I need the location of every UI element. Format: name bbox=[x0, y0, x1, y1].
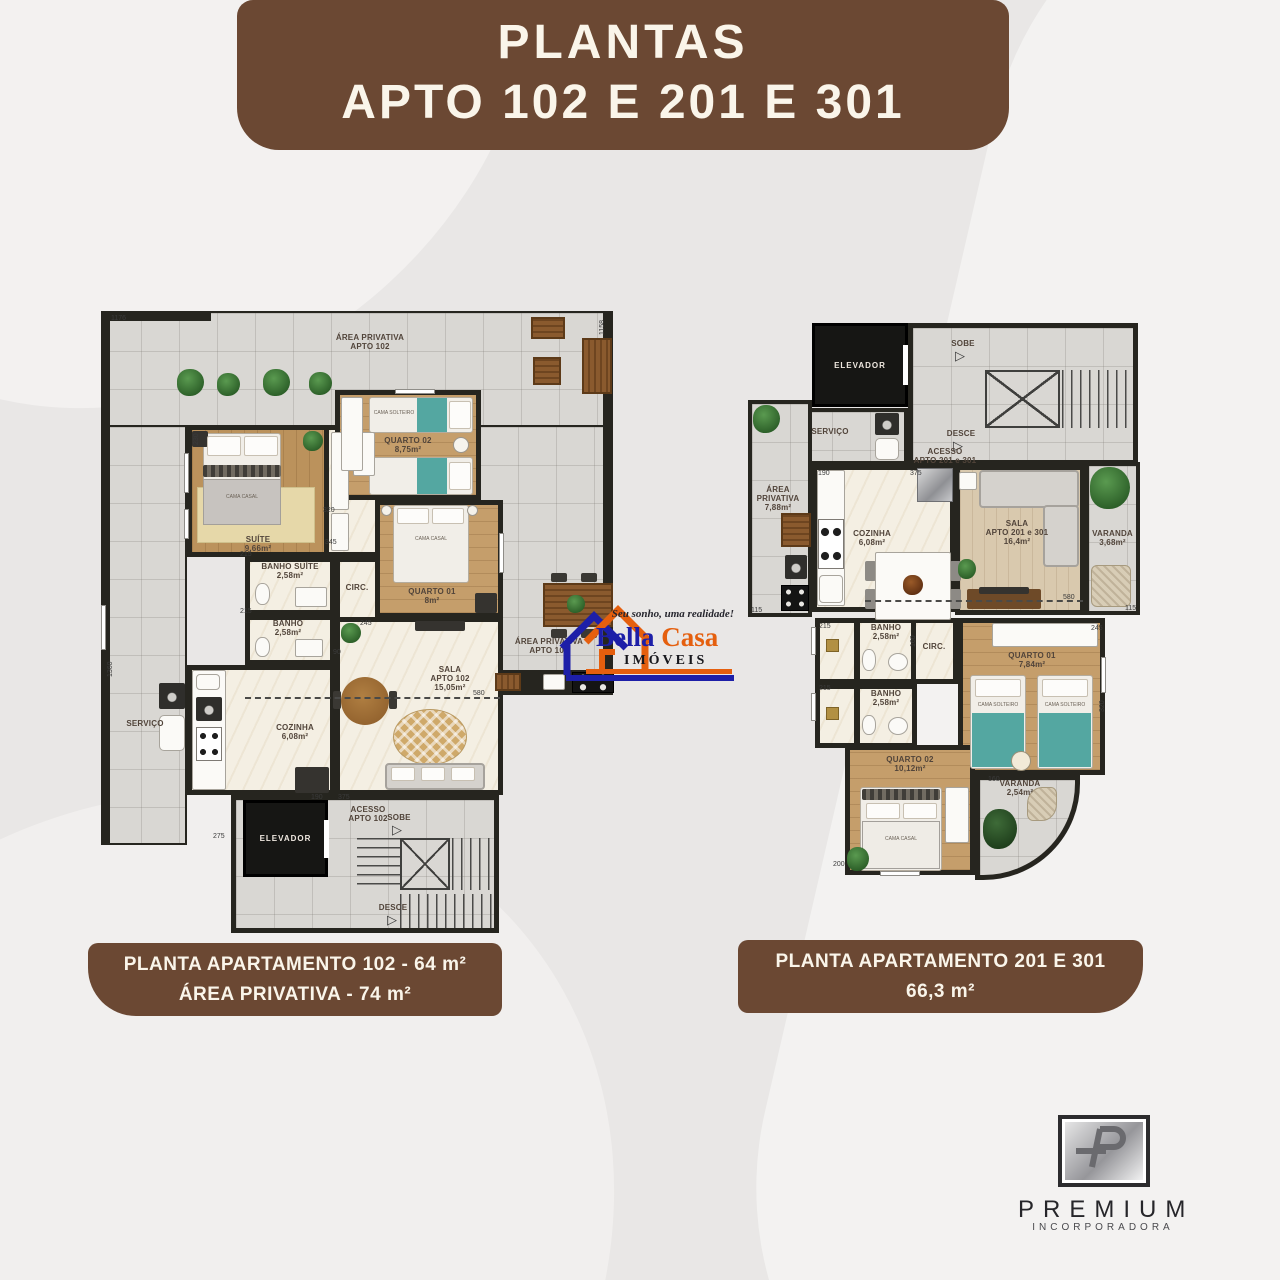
label-text: BANHO bbox=[253, 619, 323, 628]
label-text: 16,4m² bbox=[967, 537, 1067, 546]
bed-label: CAMA SOLTEIRO bbox=[371, 411, 417, 416]
deck-chair bbox=[531, 317, 565, 339]
label-text: APTO 201 e 301 bbox=[900, 456, 990, 465]
bed-cover-teal bbox=[417, 458, 447, 494]
stairs-down-arrow-icon bbox=[387, 913, 397, 926]
floorplan-apto-102: ÁREA PRIVATIVA APTO 102 ÁREA PRIVATIVA A… bbox=[95, 305, 620, 937]
banho2-label: BANHO 2,58m² bbox=[857, 689, 915, 707]
window bbox=[101, 605, 106, 650]
elevator-door bbox=[903, 345, 908, 385]
nightstand bbox=[467, 505, 478, 516]
label-text: ÁREA PRIVATIVA bbox=[745, 485, 811, 503]
stairs-up-arrow-icon bbox=[955, 349, 965, 362]
caption-line1: PLANTA APARTAMENTO 201 E 301 bbox=[738, 947, 1143, 977]
logo-underline-blue bbox=[566, 675, 734, 681]
elevator-label: ELEVADOR bbox=[834, 361, 886, 370]
label-text: 2,54m² bbox=[985, 788, 1055, 797]
label-text: 7,84m² bbox=[992, 660, 1072, 669]
chair bbox=[333, 691, 341, 709]
suite-label: SUÍTE 9,66m² bbox=[223, 535, 293, 553]
stove bbox=[196, 727, 222, 761]
laundry-washer bbox=[159, 683, 185, 709]
pillow bbox=[432, 508, 464, 524]
sofa-cushion bbox=[391, 767, 415, 781]
dimension-label: 375 bbox=[338, 794, 350, 801]
bed-label: CAMA CASAL bbox=[866, 837, 936, 842]
chair bbox=[950, 589, 961, 609]
kitchen-sink bbox=[819, 575, 843, 603]
label-text: 7,88m² bbox=[745, 503, 811, 512]
dimension-label: 190 bbox=[818, 470, 830, 477]
dimension-label: 345 bbox=[325, 539, 337, 546]
dimension-label: 580 bbox=[473, 690, 485, 697]
quarto02-label: QUARTO 02 10,12m² bbox=[860, 755, 960, 773]
bedside-table bbox=[453, 437, 469, 453]
label-text: QUARTO 01 bbox=[397, 587, 467, 596]
label-text: 3,68m² bbox=[1086, 538, 1139, 547]
banho-suite-label: BANHO SUÍTE 2,58m² bbox=[248, 562, 332, 580]
title-banner: PLANTAS APTO 102 E 201 E 301 bbox=[237, 0, 1009, 150]
sink-counter bbox=[295, 587, 327, 607]
closet-mirror bbox=[826, 639, 839, 652]
logo-underline-orange bbox=[586, 669, 732, 674]
stairs-cross-square bbox=[400, 838, 450, 890]
pillow bbox=[975, 679, 1021, 697]
measure-dashed-line bbox=[245, 697, 500, 699]
caption-apto-102: PLANTA APARTAMENTO 102 - 64 m² ÁREA PRIV… bbox=[88, 943, 502, 1016]
stair-treads bbox=[357, 838, 400, 890]
area-privativa-label: ÁREA PRIVATIVA 7,88m² bbox=[745, 485, 811, 512]
tv bbox=[979, 587, 1029, 594]
dimension-label: 215 bbox=[819, 685, 831, 692]
pillow bbox=[244, 436, 278, 456]
label-text: APTO 102 bbox=[325, 342, 415, 351]
toilet bbox=[862, 649, 876, 671]
bella-name: Bella Casa bbox=[596, 622, 718, 653]
dimension-label: 230 bbox=[193, 433, 200, 445]
tv bbox=[415, 621, 465, 631]
label-text: QUARTO 01 bbox=[992, 651, 1072, 660]
label-text: 8,75m² bbox=[373, 445, 443, 454]
label-text: QUARTO 02 bbox=[860, 755, 960, 764]
premium-monogram-icon bbox=[1058, 1115, 1150, 1187]
label-text: 2,58m² bbox=[857, 632, 915, 641]
caption-line2: 66,3 m² bbox=[738, 977, 1143, 1007]
window bbox=[499, 533, 504, 573]
stair-treads bbox=[1062, 370, 1134, 428]
caption-line1: PLANTA APARTAMENTO 102 - 64 m² bbox=[88, 950, 502, 980]
dimension-label: 190 bbox=[311, 794, 323, 801]
floorplan-apto-201-301: ELEVADOR SOBE DESCE ACESSO APTO 201 e 30… bbox=[745, 317, 1165, 883]
appliance bbox=[785, 555, 807, 579]
pillow bbox=[207, 436, 241, 456]
banho-label: BANHO 2,58m² bbox=[253, 619, 323, 637]
label-text: QUARTO 02 bbox=[373, 436, 443, 445]
bed-label: CAMA CASAL bbox=[397, 537, 465, 542]
room-circ bbox=[911, 618, 958, 684]
label-text: SUÍTE bbox=[223, 535, 293, 544]
caption-line2: ÁREA PRIVATIVA - 74 m² bbox=[88, 980, 502, 1010]
laundry-tank bbox=[875, 438, 899, 460]
nightstand bbox=[381, 505, 392, 516]
pillow bbox=[449, 401, 471, 429]
label-text: ACESSO bbox=[900, 447, 990, 456]
label-text: 6,08m² bbox=[257, 732, 333, 741]
dimension-label: 580 bbox=[1063, 594, 1075, 601]
quarto01-label: QUARTO 01 8m² bbox=[397, 587, 467, 605]
label-text: BANHO SUÍTE bbox=[248, 562, 332, 571]
label-text: COZINHA bbox=[840, 529, 904, 538]
label-text: APTO 201 e 301 bbox=[967, 528, 1067, 537]
label-text: VARANDA bbox=[1086, 529, 1139, 538]
toilet bbox=[255, 583, 270, 605]
stairs-cross-square bbox=[985, 370, 1060, 428]
wall bbox=[101, 311, 110, 845]
banho1-label: BANHO 2,58m² bbox=[857, 623, 915, 641]
elevator-label: ELEVADOR bbox=[260, 834, 312, 843]
pillow bbox=[397, 508, 429, 524]
sobe-label: SOBE bbox=[381, 813, 417, 822]
elevator-door bbox=[324, 820, 329, 858]
pillow bbox=[449, 462, 471, 490]
label-text: APTO 102 bbox=[417, 674, 483, 683]
dimension-label: 1360 bbox=[107, 661, 114, 677]
label-text: DESCE bbox=[373, 903, 413, 912]
washer bbox=[875, 413, 899, 435]
fridge bbox=[295, 767, 329, 793]
bed-cover bbox=[862, 821, 940, 869]
round-dining-table bbox=[341, 677, 389, 725]
cozinha-label: COZINHA 6,08m² bbox=[257, 723, 333, 741]
wardrobe bbox=[992, 623, 1098, 647]
caption-apto-201-301: PLANTA APARTAMENTO 201 E 301 66,3 m² bbox=[738, 940, 1143, 1013]
bella-name-orange: Casa bbox=[661, 622, 718, 652]
cozinha-label: COZINHA 6,08m² bbox=[840, 529, 904, 547]
dimension-label: 90 bbox=[333, 649, 341, 656]
wardrobe bbox=[341, 397, 363, 471]
pillow bbox=[1042, 679, 1088, 697]
round-rug bbox=[393, 709, 467, 765]
acesso-label: ACESSO APTO 201 e 301 bbox=[900, 447, 990, 465]
label-text: BANHO bbox=[857, 623, 915, 632]
bed-cover-teal bbox=[417, 398, 447, 432]
outdoor-stove bbox=[781, 585, 809, 611]
label-text: 2,58m² bbox=[253, 628, 323, 637]
dimension-label: 200 bbox=[833, 861, 845, 868]
sala-label: SALA APTO 102 15,05m² bbox=[417, 665, 483, 692]
label-text: SALA bbox=[417, 665, 483, 674]
sobe-label: SOBE bbox=[945, 339, 981, 348]
lounge-chair bbox=[1091, 565, 1131, 607]
dimension-label: 245 bbox=[1091, 625, 1103, 632]
kitchen-sink bbox=[196, 674, 220, 690]
bed-label: CAMA SOLTEIRO bbox=[974, 703, 1022, 708]
dresser bbox=[475, 593, 497, 613]
sala-label: SALA APTO 201 e 301 16,4m² bbox=[967, 519, 1067, 546]
desce-label: DESCE bbox=[373, 903, 413, 912]
circ-label: CIRC. bbox=[913, 642, 955, 651]
label-text: COZINHA bbox=[257, 723, 333, 732]
sink bbox=[888, 653, 908, 671]
area-privativa-top-label: ÁREA PRIVATIVA APTO 102 bbox=[325, 333, 415, 351]
pillow bbox=[903, 803, 937, 819]
sink bbox=[888, 717, 908, 735]
closet-mirror bbox=[826, 707, 839, 720]
dimension-label: 215 bbox=[240, 608, 252, 615]
stair-treads bbox=[400, 894, 496, 928]
desce-label: DESCE bbox=[941, 429, 981, 438]
premium-logo: PREMIUM INCORPORADORA bbox=[1018, 1112, 1188, 1232]
label-text: CIRC. bbox=[913, 642, 955, 651]
servico-label: SERVIÇO bbox=[800, 427, 860, 436]
bedside-table bbox=[1011, 751, 1031, 771]
dimension-label: 160 bbox=[988, 776, 1000, 783]
bed-label: CAMA SOLTEIRO bbox=[1041, 703, 1089, 708]
elevator: ELEVADOR bbox=[812, 323, 908, 407]
stair-treads bbox=[452, 838, 496, 890]
pillow bbox=[866, 803, 900, 819]
circ-label: CIRC. bbox=[337, 583, 377, 592]
dimension-label: 115 bbox=[751, 607, 762, 614]
label-text: ÁREA PRIVATIVA bbox=[325, 333, 415, 342]
chair bbox=[389, 691, 397, 709]
sofa-cushion bbox=[451, 767, 475, 781]
label-text: 9,66m² bbox=[223, 544, 293, 553]
window bbox=[811, 627, 816, 655]
deck-panel bbox=[582, 338, 612, 394]
window bbox=[184, 453, 189, 493]
bed-cover-teal bbox=[1039, 713, 1091, 767]
label-text: SERVIÇO bbox=[800, 427, 860, 436]
bella-casa-logo: Seu sonho, uma realidade! Bella Casa IMÓ… bbox=[552, 596, 734, 698]
quarto01-label: QUARTO 01 7,84m² bbox=[992, 651, 1072, 669]
side-table bbox=[959, 472, 977, 490]
label-text: 10,12m² bbox=[860, 764, 960, 773]
dimension-label: 1176 bbox=[111, 315, 126, 322]
varanda-sala-label: VARANDA 3,68m² bbox=[1086, 529, 1139, 547]
dimension-label: 375 bbox=[910, 470, 922, 477]
label-text: DESCE bbox=[941, 429, 981, 438]
dimension-label: 115 bbox=[1125, 605, 1136, 612]
chair bbox=[581, 573, 597, 582]
deck-chair bbox=[533, 357, 561, 385]
servico-label: SERVIÇO bbox=[115, 719, 175, 728]
label-text: SALA bbox=[967, 519, 1067, 528]
bed-cover bbox=[203, 479, 281, 525]
window bbox=[395, 389, 435, 394]
quarto02-label: QUARTO 02 8,75m² bbox=[373, 436, 443, 454]
window bbox=[880, 871, 920, 876]
bed-label: CAMA CASAL bbox=[207, 495, 277, 500]
sofa-cushion bbox=[421, 767, 445, 781]
stairs-up-arrow-icon bbox=[392, 823, 402, 836]
label-text: BANHO bbox=[857, 689, 915, 698]
sofa-l-shape bbox=[979, 470, 1079, 508]
desk bbox=[945, 787, 969, 843]
bed-headboard bbox=[862, 789, 940, 800]
poster: PLANTAS APTO 102 E 201 E 301 ÁREA PRIVAT… bbox=[0, 0, 1280, 1280]
title-line2: APTO 102 E 201 E 301 bbox=[237, 72, 1009, 134]
servico-strip bbox=[101, 425, 187, 845]
label-text: SERVIÇO bbox=[115, 719, 175, 728]
label-text: CIRC. bbox=[337, 583, 377, 592]
dimension-label: 320 bbox=[323, 507, 335, 514]
elevator: ELEVADOR bbox=[243, 800, 328, 877]
toilet bbox=[255, 637, 270, 657]
label-text: 6,08m² bbox=[840, 538, 904, 547]
toilet bbox=[862, 715, 876, 735]
chair bbox=[551, 573, 567, 582]
dimension-label: 215 bbox=[240, 551, 252, 558]
dimension-label: 320 bbox=[1099, 700, 1106, 712]
sink-counter bbox=[295, 639, 323, 657]
premium-subtitle: INCORPORADORA bbox=[1018, 1222, 1188, 1233]
bed-slat-band bbox=[203, 465, 281, 477]
bella-tagline: Seu sonho, uma realidade! bbox=[612, 608, 734, 620]
bella-subtitle: IMÓVEIS bbox=[624, 653, 707, 669]
washer bbox=[196, 697, 222, 721]
label-text: SOBE bbox=[945, 339, 981, 348]
bbq-wood-crate bbox=[495, 673, 521, 691]
dimension-label: 275 bbox=[213, 833, 225, 840]
dimension-label: 245 bbox=[360, 620, 372, 627]
label-text: 8m² bbox=[397, 596, 467, 605]
window bbox=[1101, 657, 1106, 693]
label-text: SOBE bbox=[381, 813, 417, 822]
dimension-label: 215 bbox=[819, 623, 831, 630]
title-line1: PLANTAS bbox=[237, 14, 1009, 72]
dimension-label: 1158 bbox=[599, 320, 606, 335]
grill bbox=[781, 513, 811, 547]
measure-dashed-line bbox=[865, 600, 1083, 602]
window bbox=[811, 693, 816, 721]
label-text: 2,58m² bbox=[857, 698, 915, 707]
premium-name: PREMIUM bbox=[1018, 1196, 1188, 1224]
fridge bbox=[917, 468, 953, 502]
bella-name-blue: Bella bbox=[596, 622, 655, 652]
dimension-label: 160 bbox=[910, 635, 917, 647]
label-text: 2,58m² bbox=[248, 571, 332, 580]
window bbox=[184, 509, 189, 539]
